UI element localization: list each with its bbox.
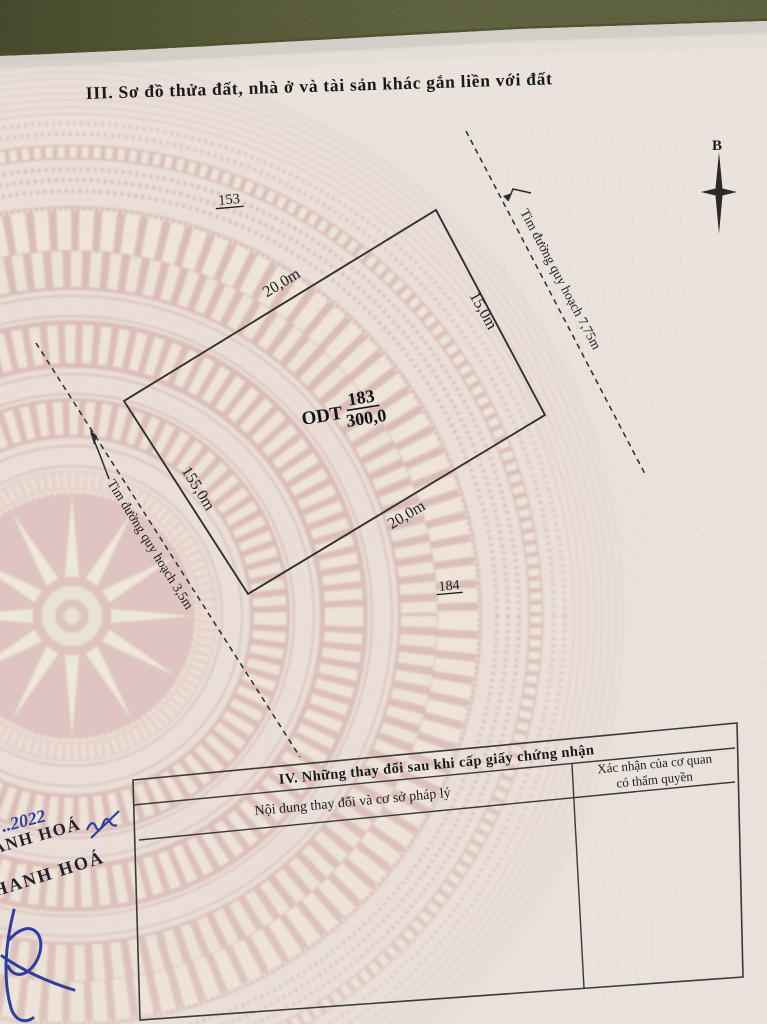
svg-text:B: B [712, 138, 722, 154]
